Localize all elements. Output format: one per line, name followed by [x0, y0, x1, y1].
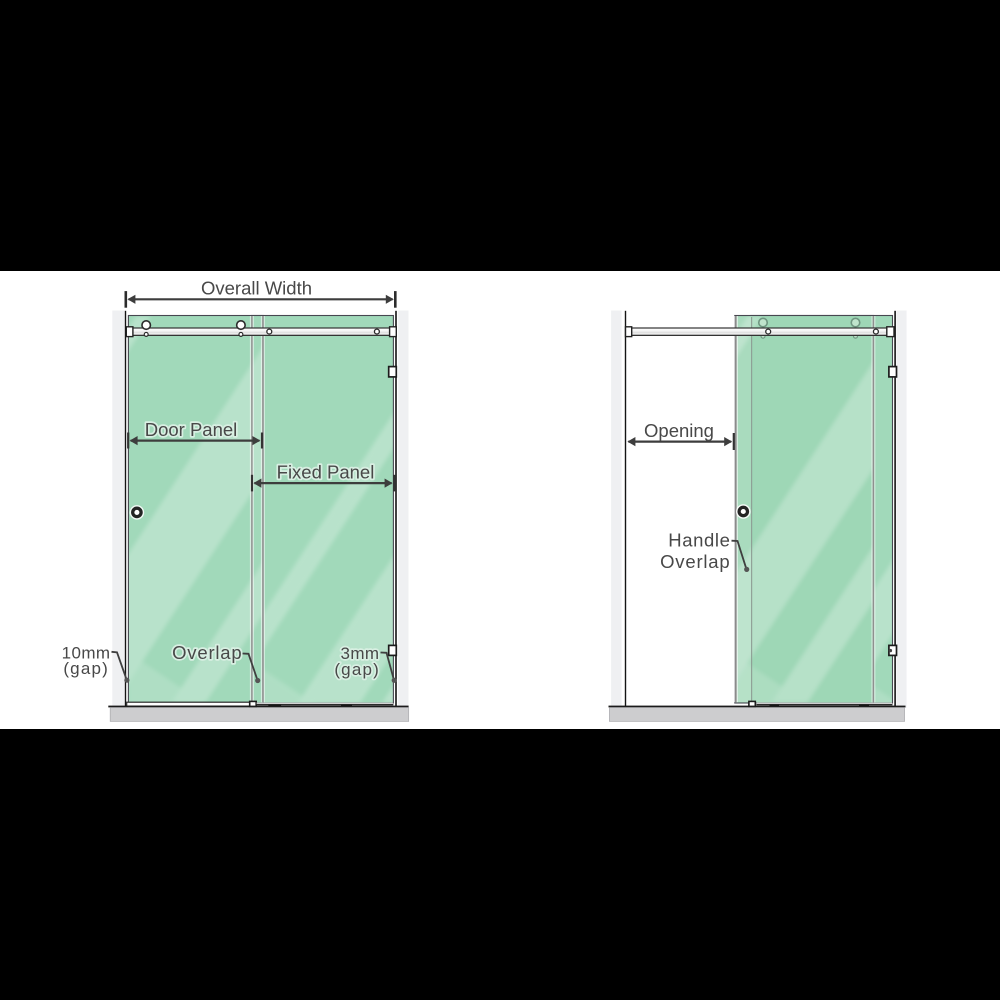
svg-text:Opening: Opening [644, 420, 714, 441]
svg-text:(gap): (gap) [334, 660, 380, 679]
svg-text:Handle: Handle [668, 529, 730, 550]
svg-text:Fixed Panel: Fixed Panel [277, 461, 375, 482]
svg-text:Overlap: Overlap [660, 551, 730, 572]
svg-text:Door Panel: Door Panel [145, 419, 238, 440]
svg-text:Overlap: Overlap [172, 642, 242, 663]
svg-text:(gap): (gap) [63, 659, 109, 678]
svg-text:Overall Width: Overall Width [201, 277, 312, 298]
